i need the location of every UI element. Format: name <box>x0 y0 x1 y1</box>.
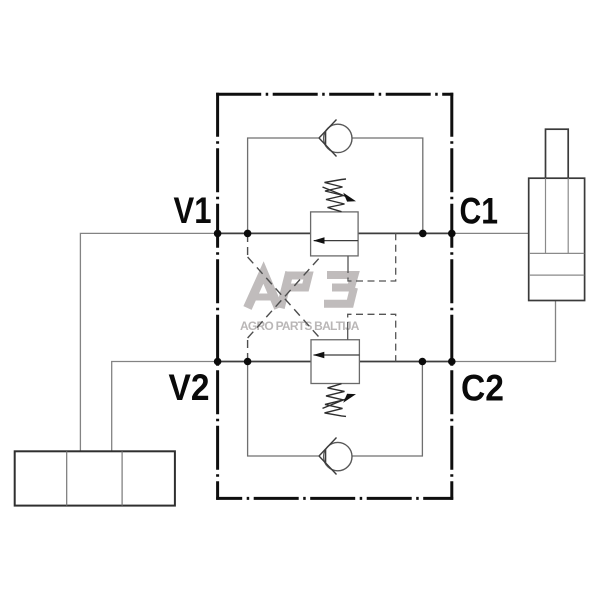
svg-text:C2: C2 <box>461 368 504 409</box>
svg-text:V1: V1 <box>174 190 212 231</box>
svg-text:V2: V2 <box>169 367 210 408</box>
svg-text:C1: C1 <box>460 191 499 232</box>
